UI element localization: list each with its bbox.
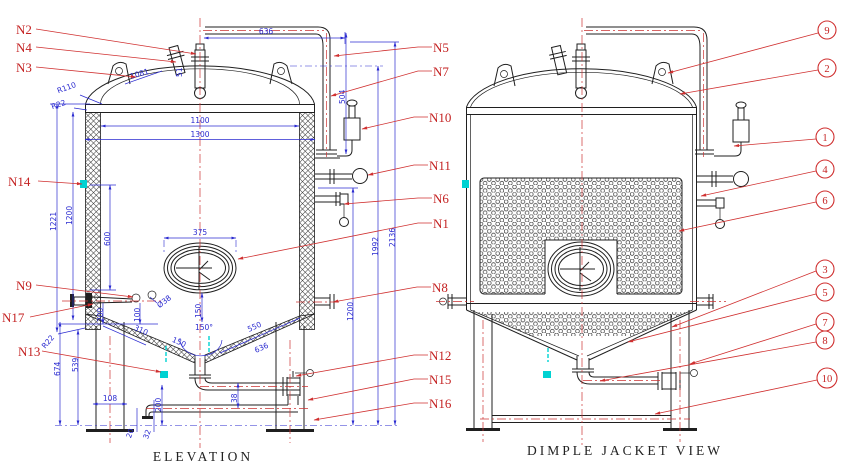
dim-20: 20 bbox=[124, 427, 136, 439]
dim-dia38: Ø38 bbox=[155, 293, 173, 310]
dim-2136: 2136 bbox=[388, 228, 397, 247]
dim-32: 32 bbox=[141, 428, 153, 440]
nozzle-label-n5: N5 bbox=[433, 40, 449, 55]
dim-51: 51 bbox=[175, 67, 184, 77]
dim-200-bottom: 200 bbox=[154, 397, 163, 412]
dim-1200-left: 1200 bbox=[65, 206, 74, 225]
dim-600: 600 bbox=[103, 231, 112, 246]
tank-drawing: 636 1100 1300 1081 51 R110 R22 1221 1200… bbox=[0, 0, 843, 475]
nozzle-label-n15: N15 bbox=[429, 372, 451, 387]
svg-text:5: 5 bbox=[822, 288, 827, 299]
nozzle-label-n4: N4 bbox=[16, 40, 32, 55]
elevation-title: ELEVATION bbox=[153, 449, 253, 464]
dim-38: 38 bbox=[230, 393, 239, 403]
dimple-view-title: DIMPLE JACKET VIEW bbox=[527, 443, 723, 458]
part-balloons: 9 2 1 4 6 3 5 7 8 10 bbox=[816, 21, 837, 388]
balloon-4: 4 bbox=[816, 160, 834, 178]
svg-text:1: 1 bbox=[822, 133, 827, 144]
dim-636-cone: 636 bbox=[253, 341, 270, 355]
nozzle-label-n16: N16 bbox=[429, 396, 452, 411]
svg-text:8: 8 bbox=[822, 336, 827, 347]
dim-108: 108 bbox=[103, 394, 118, 403]
dim-1200-right: 1200 bbox=[346, 302, 355, 321]
dim-1221: 1221 bbox=[49, 212, 58, 231]
dim-R22-bottom: R22 bbox=[40, 333, 57, 350]
dim-375: 375 bbox=[193, 228, 208, 237]
nozzle-label-n11: N11 bbox=[429, 158, 451, 173]
dim-200-drain: 200 bbox=[96, 307, 105, 322]
drawing-canvas: 636 1100 1300 1081 51 R110 R22 1221 1200… bbox=[0, 0, 843, 475]
tank-outline-right bbox=[440, 27, 750, 431]
dim-674: 674 bbox=[53, 361, 62, 376]
svg-text:2: 2 bbox=[824, 64, 829, 75]
balloon-3: 3 bbox=[816, 260, 834, 278]
nozzle-label-n17: N17 bbox=[2, 310, 25, 325]
svg-text:7: 7 bbox=[822, 318, 827, 329]
svg-text:9: 9 bbox=[824, 26, 829, 37]
svg-text:4: 4 bbox=[822, 165, 828, 176]
nozzle-label-n2: N2 bbox=[16, 22, 32, 37]
svg-text:10: 10 bbox=[822, 374, 833, 385]
dim-angle-150: 150° bbox=[195, 323, 213, 332]
balloon-6: 6 bbox=[816, 191, 834, 209]
dim-1992: 1992 bbox=[371, 237, 380, 256]
elevation-view: 636 1100 1300 1081 51 R110 R22 1221 1200… bbox=[2, 18, 452, 464]
svg-text:3: 3 bbox=[822, 265, 827, 276]
balloon-5: 5 bbox=[816, 283, 834, 301]
nozzle-label-n14: N14 bbox=[8, 174, 31, 189]
balloon-9: 9 bbox=[818, 21, 836, 39]
svg-text:6: 6 bbox=[822, 196, 827, 207]
nozzle-label-n12: N12 bbox=[429, 348, 451, 363]
balloon-8: 8 bbox=[816, 331, 834, 349]
dim-636-top: 636 bbox=[259, 27, 274, 36]
nozzle-label-n1: N1 bbox=[433, 216, 449, 231]
dimple-jacket-view: 9 2 1 4 6 3 5 7 8 10 DIMPLE JACKET VIEW bbox=[436, 18, 837, 458]
nozzle-label-n7: N7 bbox=[433, 64, 449, 79]
balloon-10: 10 bbox=[817, 368, 837, 388]
nozzle-label-n8: N8 bbox=[432, 280, 448, 295]
nozzle-label-n3: N3 bbox=[16, 60, 32, 75]
dim-R22: R22 bbox=[50, 98, 67, 111]
nozzle-label-n13: N13 bbox=[18, 344, 40, 359]
dim-1100: 1100 bbox=[190, 116, 209, 125]
balloon-1: 1 bbox=[816, 128, 834, 146]
balloon-7: 7 bbox=[816, 313, 834, 331]
nozzle-label-n9: N9 bbox=[16, 278, 32, 293]
dim-539: 539 bbox=[71, 357, 80, 372]
dim-150-manway: 150 bbox=[194, 303, 203, 318]
dim-100: 100 bbox=[133, 307, 142, 322]
nozzle-label-n6: N6 bbox=[433, 191, 449, 206]
dim-1300: 1300 bbox=[190, 130, 209, 139]
nozzle-label-n10: N10 bbox=[429, 110, 451, 125]
dim-R110: R110 bbox=[56, 80, 78, 95]
balloon-2: 2 bbox=[818, 59, 836, 77]
